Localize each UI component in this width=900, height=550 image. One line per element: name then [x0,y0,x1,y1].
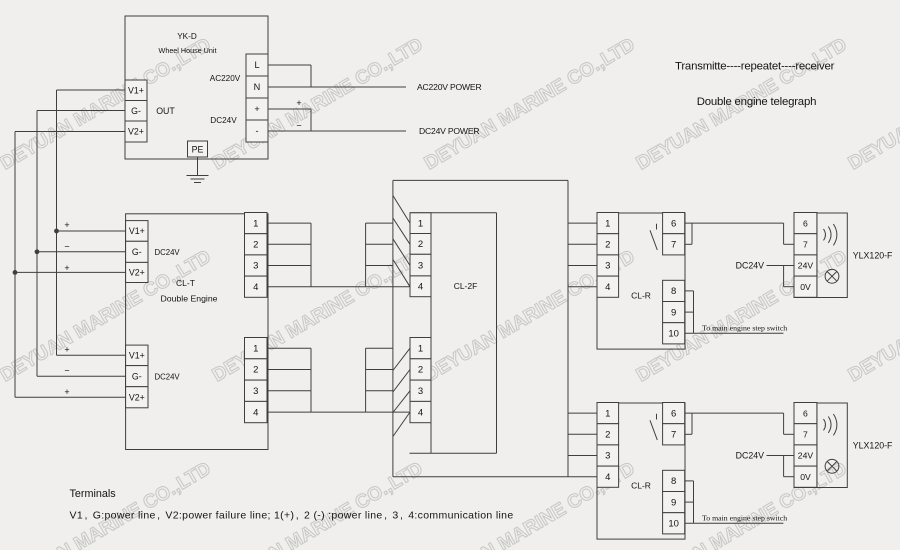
svg-text:1: 1 [605,218,610,229]
svg-text:7: 7 [671,240,676,251]
svg-text:−: − [64,366,69,376]
svg-text:2: 2 [418,365,423,376]
svg-text:Wheel House Unit: Wheel House Unit [159,46,217,55]
svg-text:2: 2 [605,430,610,441]
svg-text:8: 8 [671,476,676,487]
svg-text:3: 3 [253,386,258,397]
svg-text:0V: 0V [800,282,811,292]
svg-text:+: + [254,104,259,114]
svg-text:3: 3 [418,260,423,271]
svg-text:DC24V: DC24V [736,451,764,461]
svg-text:-: - [255,126,258,136]
svg-text:9: 9 [671,307,676,318]
svg-text:+: + [64,387,69,397]
svg-text:6: 6 [803,218,808,228]
svg-text:7: 7 [803,430,808,440]
svg-text:V1+: V1+ [129,226,145,236]
svg-text:3: 3 [253,261,258,272]
svg-text:4: 4 [605,282,610,293]
svg-text:CL-T: CL-T [176,278,195,288]
svg-text:+: + [64,220,69,230]
svg-text:+: + [64,263,69,273]
svg-text:Double Engine: Double Engine [161,293,218,303]
svg-text:4: 4 [253,407,258,418]
svg-text:6: 6 [671,408,676,419]
svg-text:CL-R: CL-R [631,290,651,300]
svg-text:2: 2 [605,240,610,251]
svg-text:3: 3 [418,386,423,397]
svg-text:2: 2 [418,239,423,250]
svg-text:AC220V: AC220V [210,74,241,83]
svg-text:G-: G- [131,106,141,116]
svg-text:+: + [64,345,69,355]
svg-text:Transmitte----repeatet----rece: Transmitte----repeatet----receiver [675,61,835,73]
svg-text:10: 10 [668,519,679,530]
svg-text:3: 3 [605,261,610,272]
svg-text:DC24V: DC24V [155,248,181,257]
svg-text:V2+: V2+ [129,392,145,402]
svg-text:1: 1 [418,343,423,354]
svg-text:6: 6 [671,218,676,229]
svg-text:To main engine step switch: To main engine step switch [702,323,787,332]
svg-text:OUT: OUT [156,106,175,116]
svg-text:4: 4 [605,472,610,483]
svg-text:N: N [254,82,261,92]
svg-text:L: L [254,60,259,70]
svg-text:CL-R: CL-R [631,480,651,490]
svg-text:1: 1 [253,218,258,229]
svg-text:V1+: V1+ [129,351,145,361]
svg-text:Terminals: Terminals [70,488,117,500]
svg-text:24V: 24V [798,451,814,461]
svg-text:YLX120-F: YLX120-F [853,440,893,450]
svg-text:DC24V: DC24V [736,261,764,271]
svg-text:PE: PE [192,144,204,154]
svg-text:DC24V POWER: DC24V POWER [419,126,479,136]
svg-text:10: 10 [668,329,679,340]
svg-text:+: + [296,98,301,108]
svg-text:4: 4 [418,282,423,293]
svg-text:1: 1 [253,343,258,354]
svg-text:−: − [64,242,69,252]
svg-text:8: 8 [671,286,676,297]
svg-text:2: 2 [253,240,258,251]
svg-text:To main engine step switch: To main engine step switch [702,513,787,522]
svg-text:24V: 24V [798,261,814,271]
svg-text:Double engine telegraph: Double engine telegraph [697,96,817,108]
svg-text:9: 9 [671,497,676,508]
svg-text:YLX120-F: YLX120-F [853,250,893,260]
svg-text:V2+: V2+ [129,268,145,278]
svg-text:1: 1 [605,408,610,419]
svg-text:G-: G- [132,371,142,381]
svg-text:6: 6 [803,408,808,418]
svg-text:V2+: V2+ [128,127,144,137]
svg-text:V1+: V1+ [128,85,144,95]
svg-text:7: 7 [671,430,676,441]
svg-text:YK-D: YK-D [177,32,197,41]
svg-text:7: 7 [803,240,808,250]
svg-text:3: 3 [605,451,610,462]
svg-text:1: 1 [418,218,423,229]
svg-text:DC24V: DC24V [155,372,181,381]
svg-text:AC220V POWER: AC220V POWER [417,82,481,92]
svg-text:CL-2F: CL-2F [454,281,478,291]
svg-text:0V: 0V [800,472,811,482]
svg-text:2: 2 [253,365,258,376]
svg-text:4: 4 [253,282,258,293]
svg-text:DC24V: DC24V [210,116,237,125]
svg-text:V1,G:power line,V2:power failu: V1,G:power line,V2:power failure line; 1… [70,510,514,522]
svg-text:G-: G- [132,247,142,257]
svg-text:4: 4 [418,407,423,418]
svg-text:−: − [296,121,301,131]
